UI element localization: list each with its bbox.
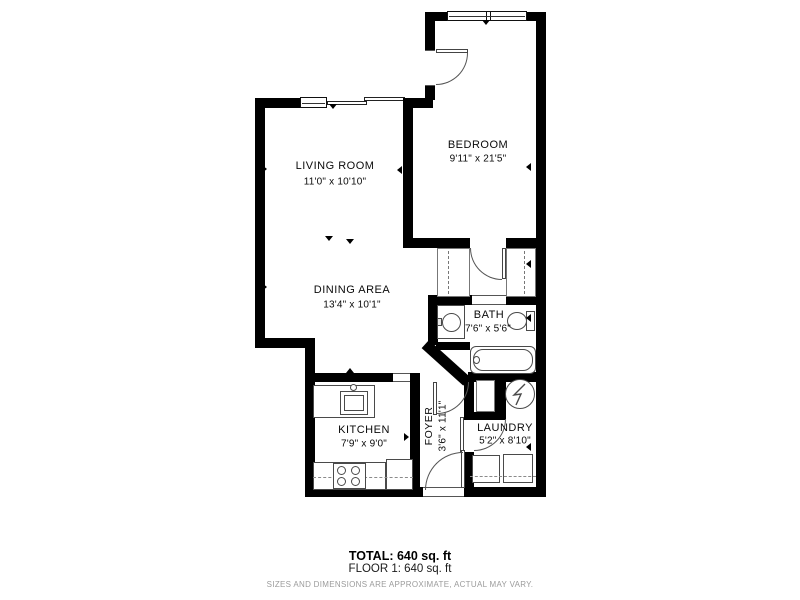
kitchen-opening xyxy=(393,373,410,382)
burner xyxy=(337,477,346,486)
bath-dimensions: 7'6" x 5'6" xyxy=(465,324,511,335)
kitchen-counter-right xyxy=(386,459,413,490)
closet-rod xyxy=(448,251,449,294)
laundry-door xyxy=(460,417,464,453)
kitchen-label: KITCHEN xyxy=(338,424,390,436)
bedroom-door-swing xyxy=(436,53,468,85)
wall-tick xyxy=(346,239,354,244)
lightning-icon xyxy=(506,380,534,408)
wall xyxy=(255,98,265,348)
closet-hall-door-swing xyxy=(470,248,502,280)
wall-tick xyxy=(397,166,402,174)
wall-tick xyxy=(482,20,490,25)
dryer xyxy=(503,454,533,483)
living-room-dimensions: 11'0" x 10'10" xyxy=(304,177,366,188)
wall xyxy=(467,487,546,497)
window-mullion xyxy=(486,12,491,20)
wall-tick xyxy=(329,104,337,109)
kitchen-sink-inner xyxy=(344,395,364,411)
bedroom-dimensions: 9'11" x 21'5" xyxy=(450,154,507,165)
dining-area-label: DINING AREA xyxy=(314,284,390,296)
closet-rod xyxy=(524,251,525,294)
foyer-dimensions: 3'6" x 11'1" xyxy=(438,401,449,452)
bath-label: BATH xyxy=(474,309,505,321)
floor-area-text: FLOOR 1: 640 sq. ft xyxy=(0,563,800,575)
closet-right xyxy=(506,248,536,297)
wall-tick xyxy=(526,260,531,268)
wall xyxy=(436,342,470,350)
living-room-label: LIVING ROOM xyxy=(296,160,375,172)
bedroom-label: BEDROOM xyxy=(448,139,508,151)
utility-chase xyxy=(476,380,495,412)
total-area-text: TOTAL: 640 sq. ft xyxy=(0,549,800,563)
closet-left xyxy=(437,248,470,297)
washer xyxy=(472,455,500,483)
laundry-counter-line xyxy=(470,476,536,477)
wall xyxy=(506,238,546,248)
wall xyxy=(403,238,470,248)
wall-tick xyxy=(526,163,531,171)
wall xyxy=(536,12,546,497)
wall xyxy=(425,12,435,50)
burner xyxy=(351,477,360,486)
bath-faucet xyxy=(437,318,442,326)
dining-area-dimensions: 13'4" x 10'1" xyxy=(323,300,380,311)
floor-plan: LIVING ROOM 11'0" x 10'10" BEDROOM 9'11"… xyxy=(0,0,800,600)
wall-tick xyxy=(404,433,409,441)
wall-tick xyxy=(262,165,267,173)
living-room-window xyxy=(300,97,327,108)
wall-tick xyxy=(346,368,354,373)
kitchen-faucet xyxy=(350,384,357,391)
wall-tick xyxy=(325,236,333,241)
wall-tick xyxy=(407,166,412,174)
wall xyxy=(305,373,393,382)
bath-hall-opening xyxy=(472,295,506,305)
bath-sink xyxy=(442,313,461,332)
burner xyxy=(337,466,346,475)
bedroom-doorway xyxy=(425,50,435,86)
tub-faucet xyxy=(473,356,480,364)
disclaimer-text: SIZES AND DIMENSIONS ARE APPROXIMATE, AC… xyxy=(0,580,800,589)
water-heater xyxy=(505,379,535,409)
wall-tick xyxy=(526,314,531,322)
laundry-label: LAUNDRY xyxy=(477,422,533,434)
foyer-label: FOYER xyxy=(423,407,435,446)
wall-tick xyxy=(262,283,267,291)
burner xyxy=(351,466,360,475)
bathtub-inner xyxy=(473,349,533,371)
sliding-door-panel xyxy=(364,97,405,101)
laundry-dimensions: 5'2" x 8'10" xyxy=(479,436,531,447)
entry-door-swing xyxy=(425,452,463,490)
kitchen-dimensions: 7'9" x 9'0" xyxy=(341,439,387,450)
